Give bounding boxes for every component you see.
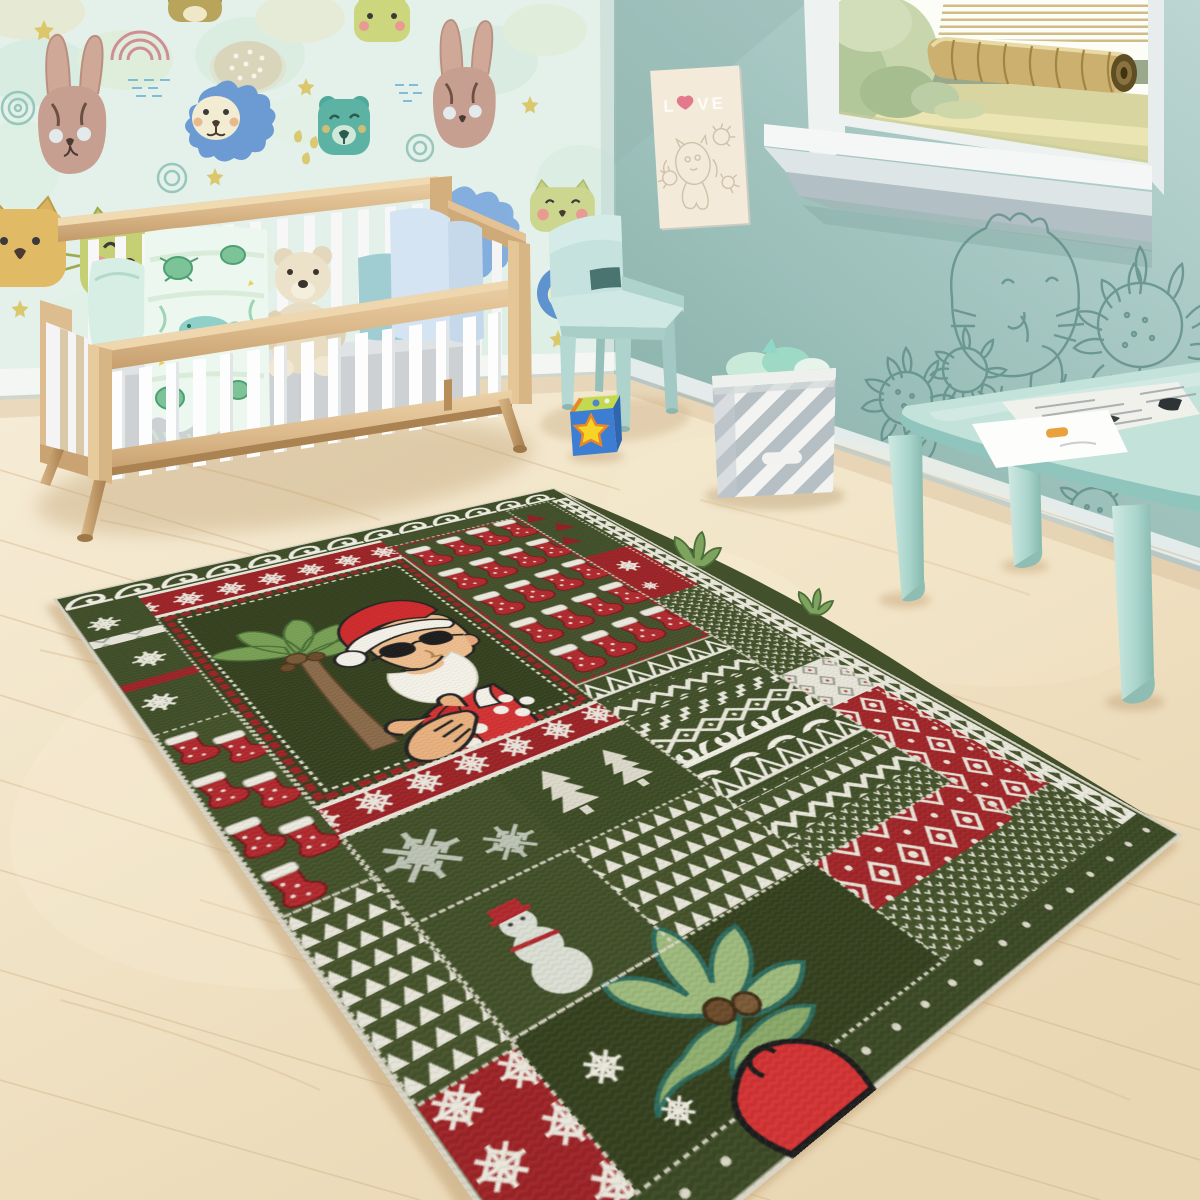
svg-text:L: L [663,96,677,116]
svg-text:VE: VE [697,93,727,114]
